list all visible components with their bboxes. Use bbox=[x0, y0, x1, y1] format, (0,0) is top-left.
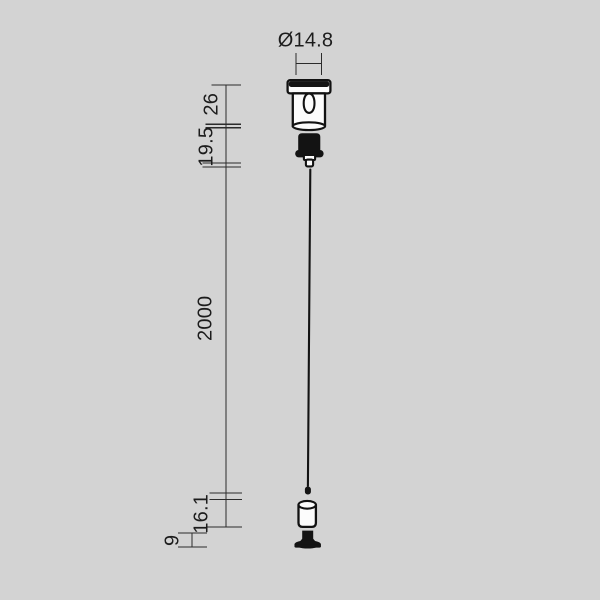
end-fitting-height-dimension-label: 16.1 bbox=[191, 494, 213, 534]
base-height-dimension-label: 9 bbox=[161, 535, 183, 546]
cable-gripper-nut bbox=[298, 133, 320, 151]
fixing-height-dimension-label: 26 bbox=[201, 93, 223, 116]
fixing-cap-top-rim bbox=[289, 81, 329, 87]
fixing-body-slot-hole bbox=[304, 94, 315, 113]
gripper-height-dimension-label: 19.5 bbox=[195, 127, 217, 167]
gripper-stem-lower bbox=[306, 160, 313, 167]
fixing-cylinder-bottom-rim bbox=[293, 122, 325, 130]
wire-length-dimension-label: 2000 bbox=[195, 296, 217, 341]
cable-end-tip bbox=[305, 487, 311, 495]
end-fitting-top-rim bbox=[299, 501, 316, 509]
diameter-dimension-label: Ø14.8 bbox=[278, 30, 333, 52]
technical-drawing-canvas: Ø14.8 26 19.5 2000 16.1 9 bbox=[0, 0, 600, 600]
mounting-base-flat bbox=[294, 544, 321, 547]
